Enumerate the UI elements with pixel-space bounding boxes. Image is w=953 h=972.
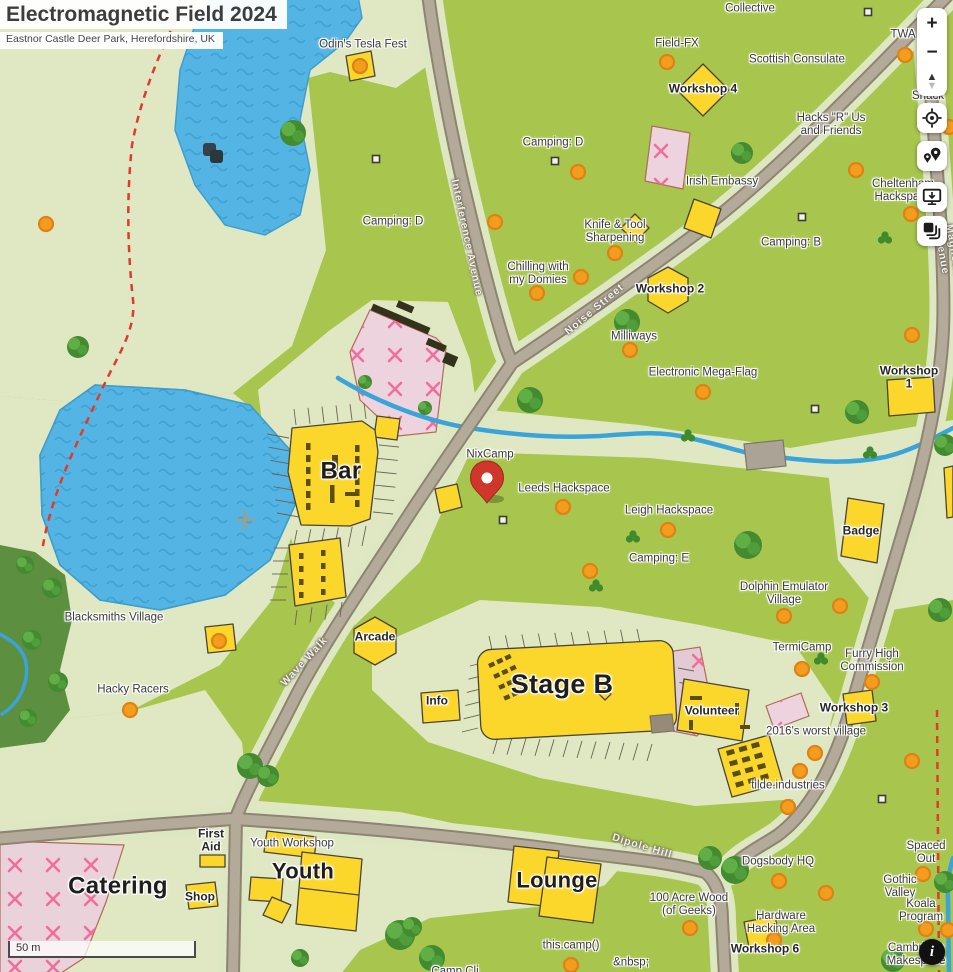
zoom-in-button[interactable]: + — [926, 14, 937, 33]
orange-dot-icon — [777, 609, 791, 623]
building-stage-b — [477, 640, 677, 740]
tree-icon — [19, 709, 37, 727]
red-map-pin[interactable] — [471, 461, 505, 503]
orange-dot-icon — [530, 286, 544, 300]
orange-dot-icon — [793, 764, 807, 778]
bush-icon — [589, 579, 603, 591]
orange-dot-icon — [39, 217, 53, 231]
orange-dot-icon — [660, 55, 674, 69]
bush-icon — [814, 652, 828, 664]
pins-button[interactable] — [917, 141, 947, 171]
orange-dot-icon — [865, 675, 879, 689]
building-workshop-1 — [887, 377, 935, 416]
building-youth-2 — [249, 877, 283, 902]
orange-dot-icon — [488, 215, 502, 229]
layers-icon — [921, 220, 943, 242]
locate-icon — [921, 107, 943, 129]
building-bar-annex — [374, 416, 400, 440]
tree-icon — [42, 578, 62, 598]
building-info — [421, 690, 460, 723]
orange-dot-icon — [123, 703, 137, 717]
plot-square-icon — [812, 406, 819, 413]
orange-dot-icon — [212, 634, 226, 648]
compass-down-icon: ▼ — [927, 80, 938, 92]
tree-icon — [257, 765, 279, 787]
orange-dot-icon — [772, 874, 786, 888]
orange-dot-icon — [696, 385, 710, 399]
orange-dot-icon — [781, 800, 795, 814]
title-card: Electromagnetic Field 2024 Eastnor Castl… — [0, 0, 287, 49]
orange-dot-icon — [767, 933, 781, 947]
compass-button[interactable]: ▲ ▼ — [927, 72, 938, 90]
page-subtitle: Eastnor Castle Deer Park, Herefordshire,… — [0, 32, 223, 49]
tree-icon — [67, 336, 89, 358]
building-lounge-2 — [539, 857, 601, 923]
locate-button[interactable] — [917, 103, 947, 133]
page-title: Electromagnetic Field 2024 — [0, 0, 287, 29]
tree-icon — [16, 556, 34, 574]
tree-icon — [291, 949, 309, 967]
plot-square-icon — [552, 158, 559, 165]
attribution-button[interactable]: i — [919, 939, 945, 965]
zoom-out-button[interactable]: − — [926, 43, 937, 62]
orange-dot-icon — [849, 163, 863, 177]
small-shed — [650, 714, 674, 733]
zoom-control[interactable]: + − ▲ ▼ — [917, 8, 947, 96]
tree-icon — [418, 401, 432, 415]
bush-icon — [878, 231, 892, 243]
building-knife-tool — [621, 214, 649, 242]
map-canvas[interactable]: Odin's Tesla FestCollectiveField-FXScott… — [0, 0, 953, 972]
screen-export-icon — [921, 186, 943, 208]
plot-square-icon — [799, 214, 806, 221]
orange-dot-icon — [556, 500, 570, 514]
scale-bar-label: 50 m — [16, 942, 40, 954]
tree-icon — [934, 871, 953, 893]
orange-dot-icon — [564, 958, 578, 972]
building-bar-lower — [289, 538, 346, 606]
tree-icon — [358, 375, 372, 389]
tree-icon — [845, 400, 869, 424]
tree-icon — [614, 309, 640, 335]
orange-dot-icon — [808, 746, 822, 760]
tree-icon — [280, 120, 306, 146]
tree-icon — [928, 598, 952, 622]
orange-dot-icon — [353, 59, 367, 73]
orange-dot-icon — [916, 867, 930, 881]
tree-icon — [698, 846, 722, 870]
orange-dot-icon — [608, 246, 622, 260]
tree-icon — [734, 531, 762, 559]
orange-dot-icon — [571, 165, 585, 179]
plot-square-icon — [373, 156, 380, 163]
tree-icon — [419, 945, 445, 971]
building-shop — [186, 882, 218, 909]
orange-dot-icon — [833, 599, 847, 613]
building-nixcamp — [435, 484, 462, 513]
bridge-building — [744, 440, 786, 470]
plot-square-icon — [879, 796, 886, 803]
orange-dot-icon — [623, 343, 637, 357]
orange-dot-icon — [583, 564, 597, 578]
plot-square-icon — [865, 9, 872, 16]
orange-dot-icon — [941, 923, 953, 937]
building-first-aid — [200, 855, 225, 867]
tree-icon — [721, 856, 749, 884]
orange-dot-icon — [905, 328, 919, 342]
orange-dot-icon — [795, 662, 809, 676]
tree-icon — [517, 387, 543, 413]
bush-icon — [626, 530, 640, 542]
orange-dot-icon — [919, 922, 933, 936]
export-button[interactable] — [917, 182, 947, 212]
orange-dot-icon — [905, 754, 919, 768]
base-map — [0, 0, 953, 972]
orange-dot-icon — [904, 207, 918, 221]
layers-button[interactable] — [917, 216, 947, 246]
scale-bar: 50 m — [8, 941, 196, 958]
orange-dot-icon — [661, 523, 675, 537]
orange-dot-icon — [683, 921, 697, 935]
orange-dot-icon — [574, 270, 588, 284]
tree-icon — [731, 142, 753, 164]
plot-square-icon — [500, 517, 507, 524]
tree-icon — [881, 948, 905, 972]
tree-icon — [22, 630, 42, 650]
map-pins-icon — [921, 145, 943, 167]
tree-icon — [48, 672, 68, 692]
orange-dot-icon — [898, 48, 912, 62]
building-workshop-4 — [677, 64, 729, 116]
building-badge — [841, 498, 884, 563]
building-workshop-3 — [843, 690, 876, 725]
tree-icon — [402, 917, 422, 937]
orange-dot-icon — [819, 886, 833, 900]
